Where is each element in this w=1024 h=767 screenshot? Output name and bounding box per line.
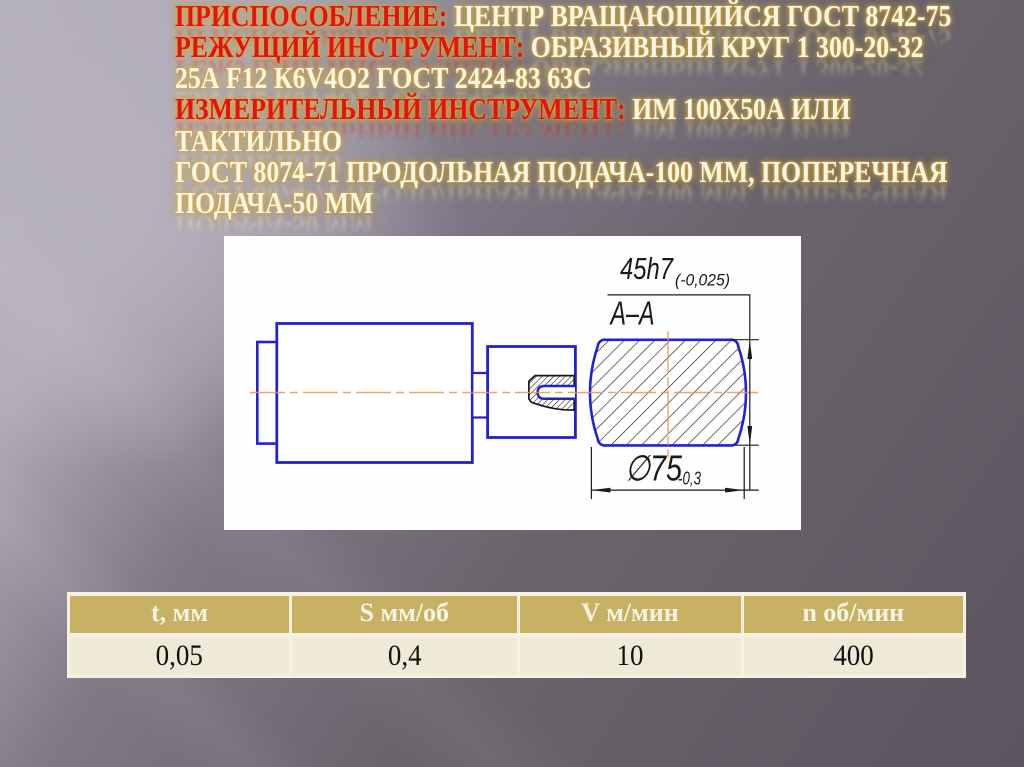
svg-text:45h7: 45h7 [620, 251, 674, 286]
svg-text:A–A: A–A [609, 296, 654, 333]
svg-text:∅75: ∅75 [625, 448, 683, 489]
svg-text:(-0,025): (-0,025) [675, 271, 730, 290]
svg-text:-0,3: -0,3 [678, 469, 701, 489]
